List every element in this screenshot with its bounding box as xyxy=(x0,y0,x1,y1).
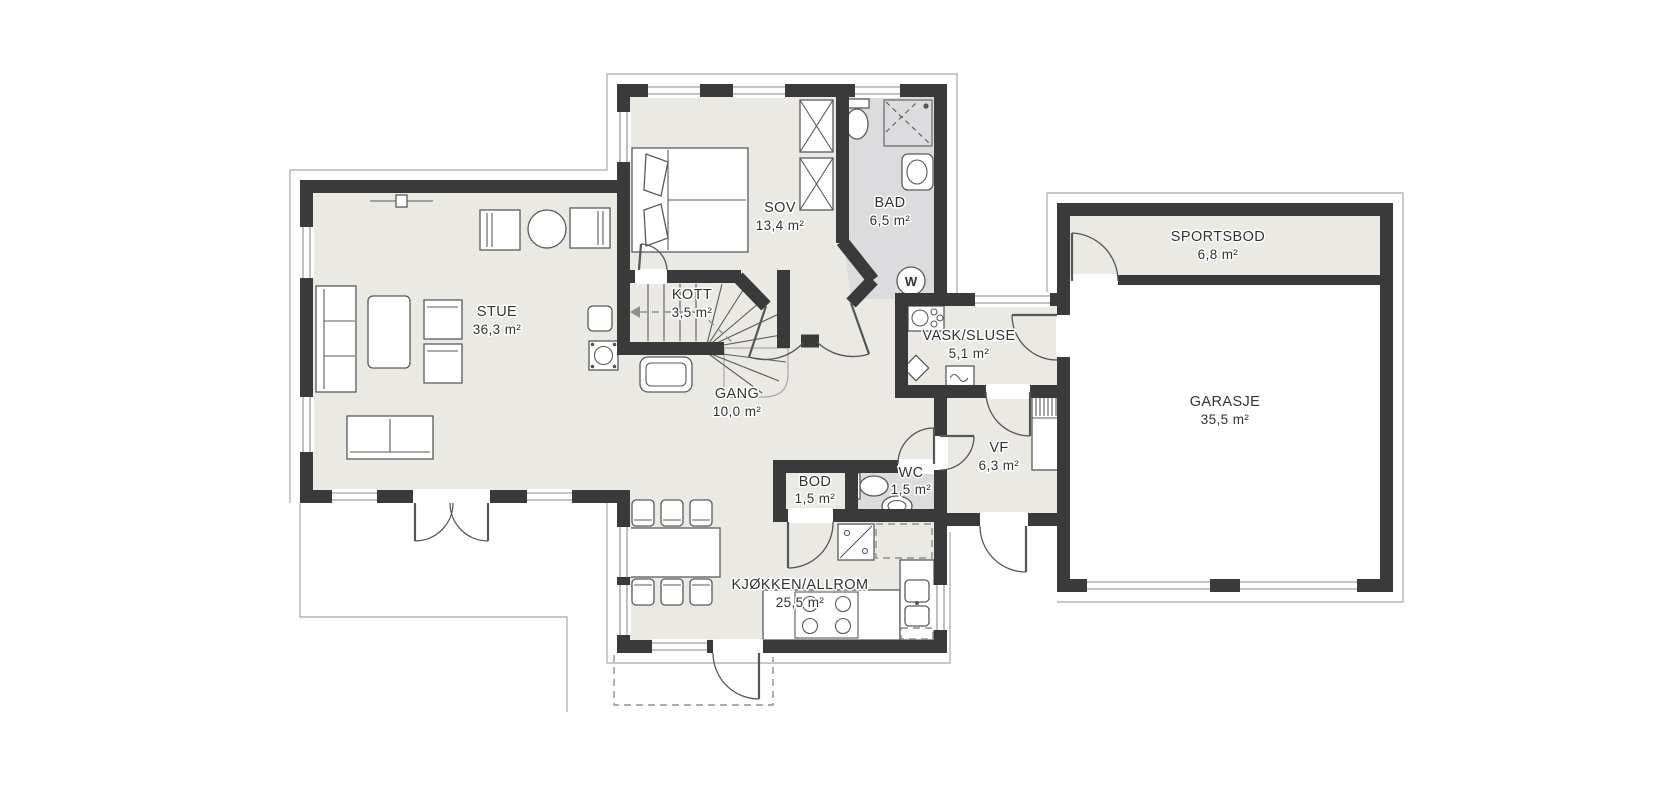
svg-text:35,5 m²: 35,5 m² xyxy=(1201,412,1250,427)
window xyxy=(933,585,948,630)
wardrobe xyxy=(800,158,833,210)
svg-text:6,3 m²: 6,3 m² xyxy=(979,458,1020,473)
svg-text:SPORTSBOD: SPORTSBOD xyxy=(1171,229,1265,245)
svg-text:BOD: BOD xyxy=(799,474,832,490)
dining-table-group xyxy=(628,500,720,605)
svg-text:36,3 m²: 36,3 m² xyxy=(473,322,522,337)
bench xyxy=(640,357,692,392)
window xyxy=(616,585,631,635)
entrance-door xyxy=(980,526,1026,572)
svg-text:GARASJE: GARASJE xyxy=(1190,394,1261,410)
svg-text:SOV: SOV xyxy=(764,200,796,216)
svg-text:VF: VF xyxy=(989,440,1008,456)
water-heater-icon: W xyxy=(897,267,925,295)
window xyxy=(332,489,377,504)
armchair xyxy=(480,210,520,250)
svg-text:1,5 m²: 1,5 m² xyxy=(891,482,932,497)
svg-text:1,5 m²: 1,5 m² xyxy=(795,491,836,506)
armchair xyxy=(424,344,462,383)
exterior-door xyxy=(713,653,759,699)
svg-text:W: W xyxy=(905,274,918,289)
french-door xyxy=(415,503,488,541)
svg-text:BAD: BAD xyxy=(874,195,905,211)
window xyxy=(299,397,314,452)
svg-text:GANG: GANG xyxy=(715,386,759,402)
window xyxy=(733,83,785,98)
svg-text:STUE: STUE xyxy=(477,304,517,320)
svg-text:VASK/SLUSE: VASK/SLUSE xyxy=(922,328,1015,344)
window xyxy=(616,527,631,577)
floor-plan-drawing: W xyxy=(0,0,1670,800)
wood-stove-icon xyxy=(589,341,618,370)
svg-text:5,1 m²: 5,1 m² xyxy=(949,346,990,361)
room-label-garasje: GARASJE35,5 m² xyxy=(1190,394,1261,427)
shoe-rack xyxy=(1032,396,1061,470)
sofa xyxy=(347,416,433,459)
wardrobe xyxy=(800,100,833,152)
window xyxy=(299,227,314,278)
round-table xyxy=(528,210,566,248)
svg-text:25,5 m²: 25,5 m² xyxy=(776,595,825,610)
svg-text:13,4 m²: 13,4 m² xyxy=(756,218,805,233)
armchair xyxy=(424,300,462,339)
window xyxy=(648,83,700,98)
floor-plan-page: W xyxy=(0,0,1670,800)
armchair xyxy=(570,208,610,248)
svg-text:WC: WC xyxy=(899,465,924,481)
sofa xyxy=(316,286,356,392)
svg-text:KOTT: KOTT xyxy=(672,287,712,303)
double-bed xyxy=(632,148,748,252)
window xyxy=(616,112,631,162)
window xyxy=(652,639,707,654)
dishwasher-icon xyxy=(838,524,874,560)
window xyxy=(975,292,1050,307)
svg-text:6,8 m²: 6,8 m² xyxy=(1198,247,1239,262)
svg-text:10,0 m²: 10,0 m² xyxy=(713,404,762,419)
side-table xyxy=(588,306,612,331)
svg-text:6,5 m²: 6,5 m² xyxy=(870,213,911,228)
bathroom-sink-icon xyxy=(902,154,933,190)
coffee-table xyxy=(368,296,410,368)
window xyxy=(527,489,572,504)
window xyxy=(855,83,900,98)
svg-text:KJØKKEN/ALLROM: KJØKKEN/ALLROM xyxy=(732,577,869,593)
svg-text:3,5 m²: 3,5 m² xyxy=(672,305,713,320)
